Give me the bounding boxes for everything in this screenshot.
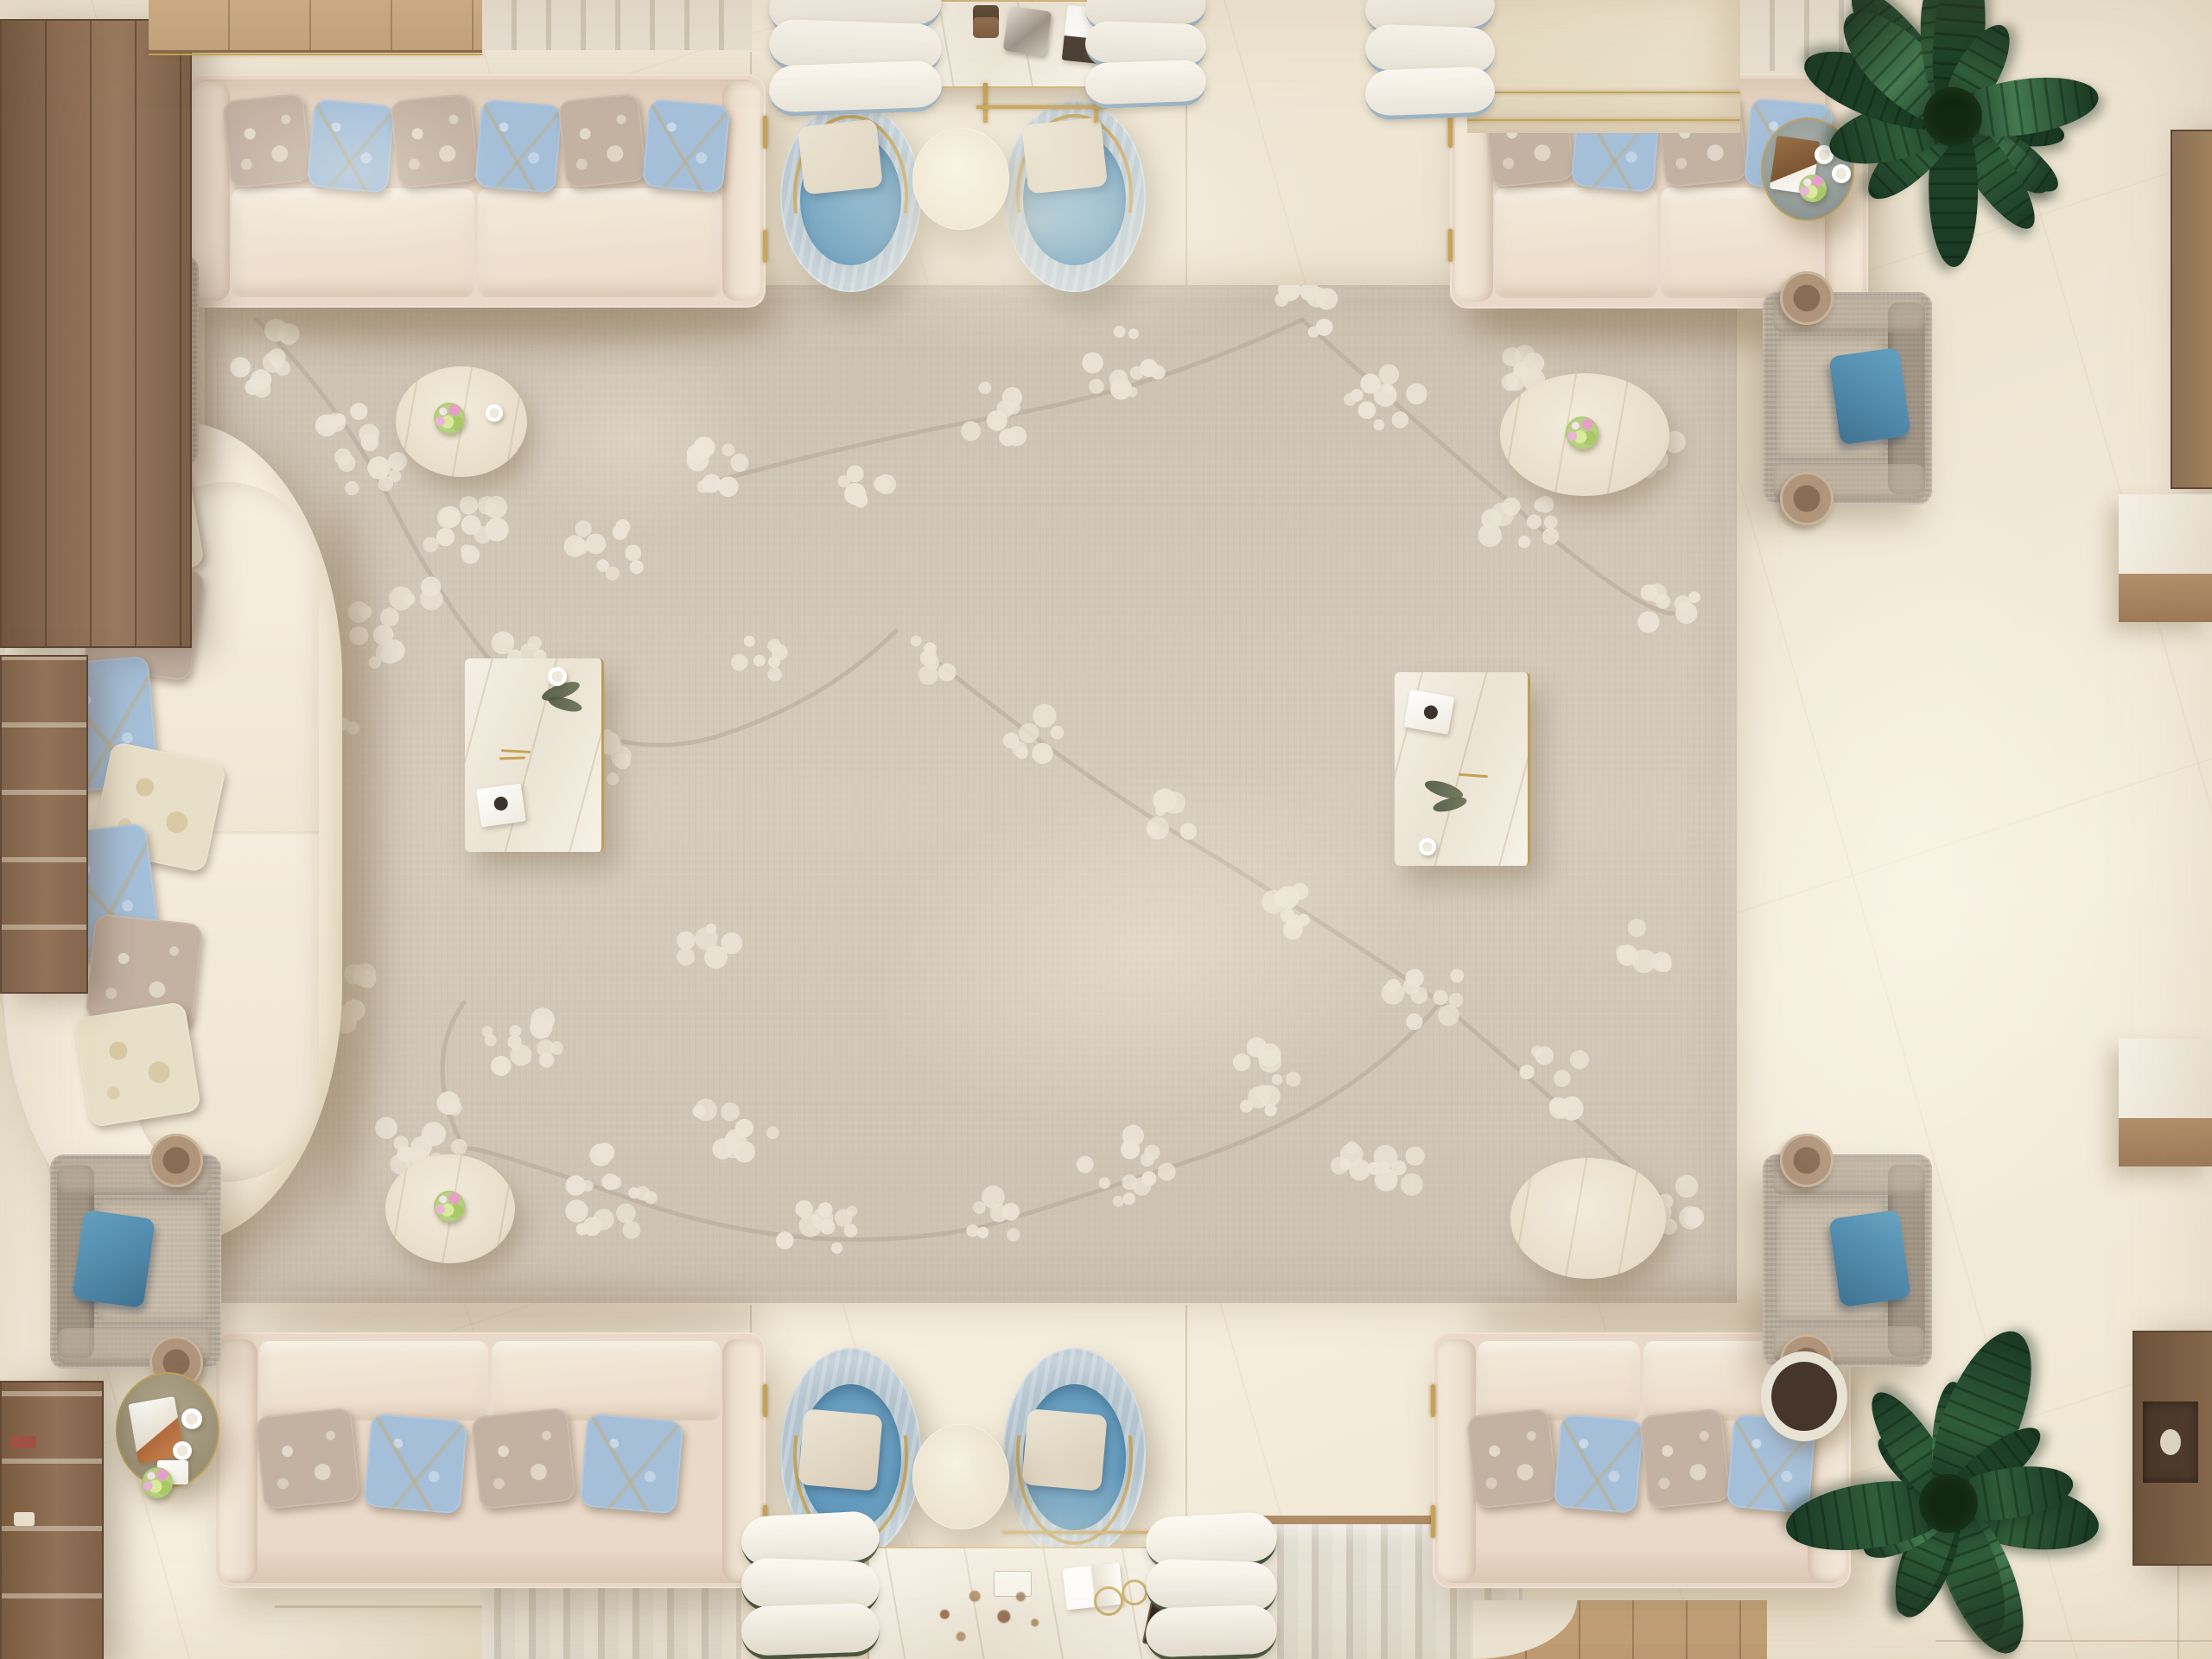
cup-holder xyxy=(149,1134,203,1187)
curtain-top-left xyxy=(769,0,942,130)
paperweight xyxy=(493,796,509,811)
brass-handle xyxy=(763,230,767,263)
brass-handle xyxy=(1431,1505,1435,1538)
chair-pillow xyxy=(798,1408,884,1491)
sofa-pillow-taupe xyxy=(255,1407,361,1510)
ceiling-soffit-right xyxy=(1467,0,1740,133)
plant-bottom-right xyxy=(1737,1322,2212,1659)
oval-table-top-left xyxy=(396,366,527,477)
marble-step xyxy=(275,1605,482,1659)
lounge-room-render xyxy=(0,0,2212,1659)
sofa-pillow-taupe xyxy=(1466,1408,1559,1509)
coffee-cup xyxy=(173,1441,192,1460)
gold-pen xyxy=(501,749,531,753)
brass-handle xyxy=(1431,1384,1435,1417)
sofa-pillow-blue xyxy=(474,99,563,194)
small-cup xyxy=(548,667,567,686)
plant-center xyxy=(1923,87,1982,146)
armchair-pillow xyxy=(72,1210,156,1309)
armchair-pillow xyxy=(1828,347,1911,446)
cabinet-shelves xyxy=(2,657,86,992)
console-table-bottom xyxy=(868,1547,1189,1659)
curtain-fold xyxy=(1084,60,1207,110)
chair-pillow xyxy=(1021,1408,1108,1491)
chair-pillow xyxy=(798,119,884,195)
paperweight xyxy=(1423,704,1440,721)
cup-holder xyxy=(1780,472,1834,525)
cup-holder xyxy=(1780,1134,1834,1187)
sofa-pillow-taupe xyxy=(557,92,647,188)
decor-sculpture xyxy=(1003,6,1052,56)
sofa-pillow-blue xyxy=(364,1413,468,1514)
curtain-fold xyxy=(768,60,943,117)
sofa-seat xyxy=(478,188,721,297)
sofa-pillow-blue xyxy=(642,99,731,194)
wood-panels xyxy=(2,21,190,646)
plant-top-right xyxy=(1737,0,2212,320)
coffee-cup xyxy=(181,1408,202,1429)
round-side-table-top xyxy=(912,128,1009,230)
small-cup xyxy=(486,404,503,422)
shelf-books xyxy=(10,1436,36,1448)
brass-trim xyxy=(1467,119,1740,121)
curtain-bottom-left xyxy=(741,1522,880,1659)
oval-table-bottom-left xyxy=(385,1154,515,1263)
sofa-arm xyxy=(219,1339,257,1581)
brass-handle xyxy=(1448,229,1452,262)
sofa-pillow-taupe xyxy=(390,92,480,188)
console-wood-apron xyxy=(2119,574,2212,622)
accent-table-bottom-left-glass xyxy=(116,1372,219,1488)
sofa-pillow-taupe xyxy=(471,1407,577,1510)
console-right-upper xyxy=(2119,494,2212,622)
sofa-pillow-blue xyxy=(307,99,396,194)
brass-trim xyxy=(1467,92,1740,93)
small-cup xyxy=(1419,838,1436,855)
ceiling-beams-left xyxy=(482,0,752,50)
curtain-bottom-right xyxy=(1146,1522,1277,1659)
sofa-pillow-taupe xyxy=(222,92,312,188)
flower-bouquet xyxy=(1566,416,1599,449)
oval-table-bottom-right xyxy=(1510,1158,1666,1279)
curtain-fold xyxy=(1364,66,1496,120)
sofa-pillow-blue xyxy=(580,1413,684,1514)
shelf-object xyxy=(14,1512,35,1526)
sofa-bottom-left xyxy=(214,1332,766,1588)
flower-bouquet xyxy=(434,403,465,434)
flower-bouquet xyxy=(142,1467,173,1498)
note-card xyxy=(1404,690,1455,734)
sofa-seat xyxy=(492,1341,721,1421)
sofa-pillow-blue xyxy=(1553,1414,1643,1514)
monstera-leaf xyxy=(1432,794,1468,814)
sofa-seat xyxy=(1478,1341,1640,1421)
console-wood-apron xyxy=(2119,1118,2212,1166)
gold-ring-decor xyxy=(1094,1586,1123,1616)
sofa-pillow-taupe xyxy=(1639,1408,1732,1509)
gold-ring-decor xyxy=(1122,1580,1147,1605)
floor-joint xyxy=(1185,1305,1187,1547)
curtain-top-middle xyxy=(1085,0,1206,114)
coffee-table-right xyxy=(1395,672,1530,866)
swivel-chair-bottom-right xyxy=(1003,1348,1146,1560)
sofa-seat xyxy=(259,1341,488,1421)
cabinet-left-bottom xyxy=(0,1381,104,1659)
sofa-backrest xyxy=(223,1547,757,1583)
curtain-fold xyxy=(1145,1604,1278,1659)
curtain-fold xyxy=(741,1603,880,1659)
curtain-top-right xyxy=(1365,0,1495,126)
cabinet-left-middle xyxy=(0,655,88,994)
sofa-seat xyxy=(232,188,474,297)
gold-pen xyxy=(1459,773,1488,778)
flower-bouquet xyxy=(434,1191,465,1222)
wardrobe-top-left xyxy=(0,19,192,648)
ceiling-wood-planks-left xyxy=(149,0,482,53)
plank-joints xyxy=(149,0,482,50)
armchair-pillow xyxy=(1828,1210,1911,1308)
sofa-top-left xyxy=(187,74,766,308)
oval-table-top-right xyxy=(1500,373,1669,496)
coffee-table-left xyxy=(465,658,604,852)
gold-pen xyxy=(499,756,525,760)
brass-handle xyxy=(763,1384,767,1417)
armchair-bottom-left xyxy=(50,1154,221,1369)
brass-trim xyxy=(149,54,482,55)
console-right-lower xyxy=(2119,1039,2212,1166)
sofa-seat xyxy=(1495,188,1657,298)
sofa-pillow xyxy=(73,1001,201,1128)
armchair-top-right xyxy=(1763,292,1932,505)
brass-handle xyxy=(763,116,767,149)
plant-center xyxy=(1919,1474,1978,1533)
console-leg xyxy=(983,83,988,123)
swivel-chair-top-left xyxy=(780,102,921,292)
round-side-table-bottom xyxy=(912,1424,1009,1529)
note-card xyxy=(476,784,526,828)
decor-trinket xyxy=(973,5,999,38)
